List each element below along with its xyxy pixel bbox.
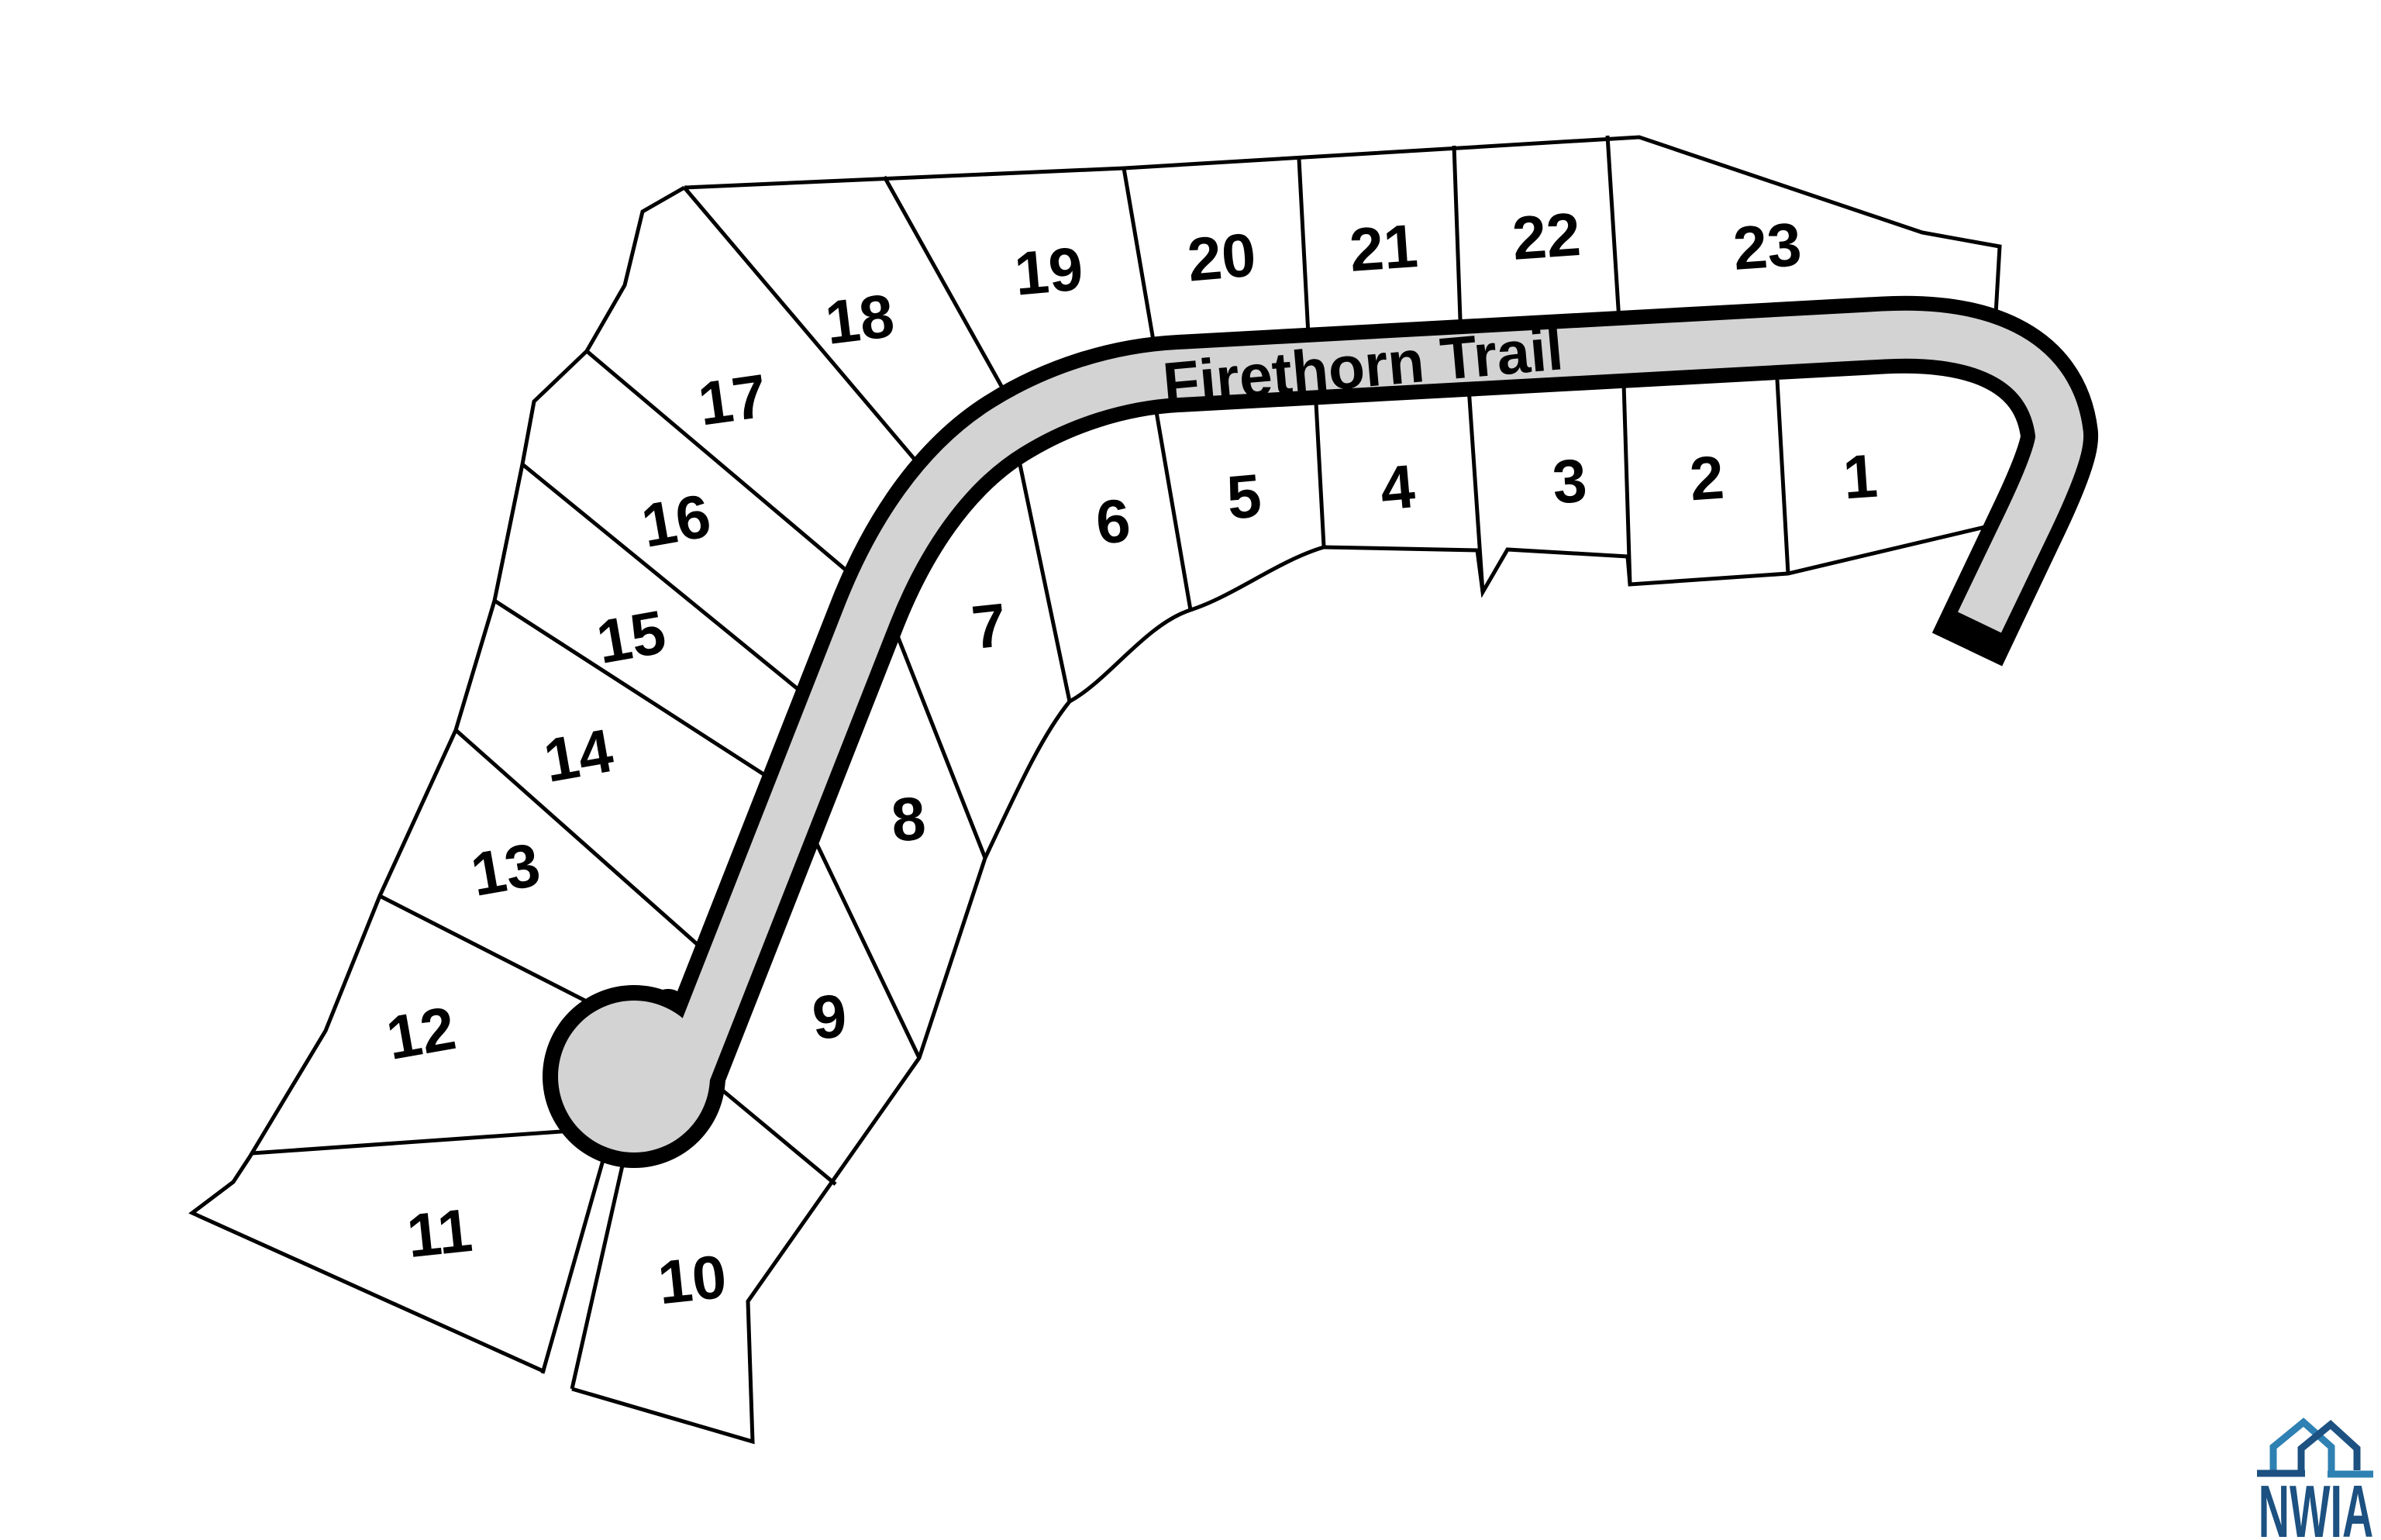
svg-text:12: 12 [381,993,460,1073]
svg-text:8: 8 [889,784,928,855]
svg-text:13: 13 [466,829,545,909]
svg-text:6: 6 [1093,485,1133,556]
svg-text:17: 17 [694,360,771,438]
svg-text:16: 16 [636,481,715,560]
svg-text:4: 4 [1377,451,1418,522]
svg-text:10: 10 [655,1242,730,1318]
svg-text:3: 3 [1550,446,1589,517]
svg-text:15: 15 [591,597,670,677]
svg-text:1: 1 [1841,441,1880,512]
svg-text:5: 5 [1224,460,1264,532]
svg-text:22: 22 [1510,199,1583,273]
svg-text:7: 7 [969,590,1010,662]
svg-text:11: 11 [404,1195,475,1270]
svg-text:9: 9 [810,981,849,1053]
svg-text:21: 21 [1347,211,1420,284]
svg-text:20: 20 [1184,219,1258,294]
svg-text:19: 19 [1011,233,1085,308]
svg-text:14: 14 [539,715,618,795]
svg-text:2: 2 [1687,443,1726,514]
svg-text:23: 23 [1731,209,1804,283]
svg-text:NWIA: NWIA [2259,1469,2373,1540]
svg-text:18: 18 [822,281,898,357]
